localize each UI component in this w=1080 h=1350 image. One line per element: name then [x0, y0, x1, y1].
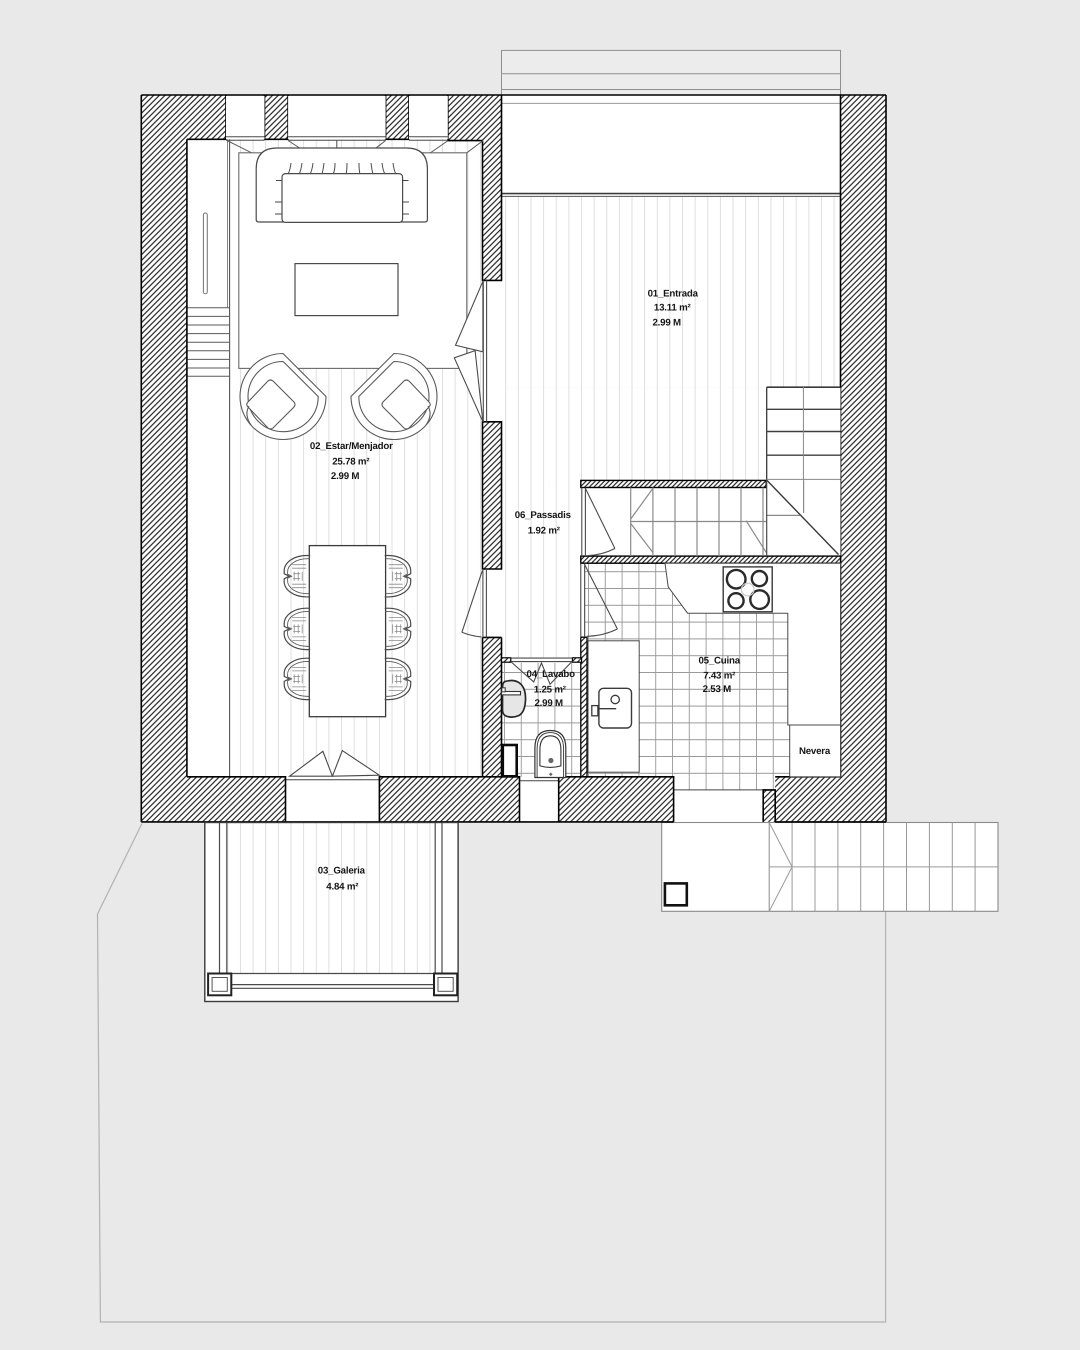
svg-text:02_Estar/Menjador: 02_Estar/Menjador: [310, 441, 393, 452]
svg-text:06_Passadis: 06_Passadis: [515, 510, 571, 521]
svg-text:04_Lavabo: 04_Lavabo: [527, 669, 576, 680]
svg-text:05_Cuina: 05_Cuina: [698, 656, 740, 667]
svg-text:Nevera: Nevera: [799, 746, 831, 757]
svg-text:2.99 M: 2.99 M: [534, 698, 563, 709]
svg-text:4.84 m²: 4.84 m²: [326, 882, 359, 893]
svg-text:01_Entrada: 01_Entrada: [648, 288, 699, 299]
svg-text:7.43 m²: 7.43 m²: [703, 670, 736, 681]
svg-text:25.78 m²: 25.78 m²: [332, 457, 370, 468]
svg-text:2.99 M: 2.99 M: [331, 471, 360, 482]
svg-text:13.11 m²: 13.11 m²: [654, 302, 692, 313]
svg-text:2.99 M: 2.99 M: [652, 317, 681, 328]
svg-text:2.53 M: 2.53 M: [703, 684, 732, 695]
svg-text:1.25 m²: 1.25 m²: [534, 684, 567, 695]
svg-text:1.92 m²: 1.92 m²: [528, 525, 561, 536]
svg-text:03_Galeria: 03_Galeria: [318, 866, 366, 877]
